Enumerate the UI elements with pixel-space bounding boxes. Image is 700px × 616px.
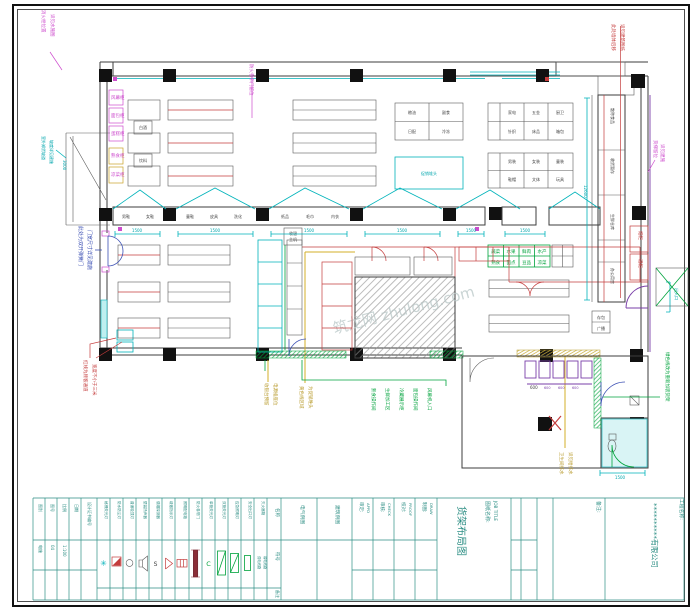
legend-symbol-speaker [139, 556, 148, 571]
grid-cell: 蔬菜 [491, 248, 500, 255]
service-label: 生鲜仓库 [610, 214, 616, 230]
grid-cell: 女装 [532, 158, 540, 164]
case-label: 熟食柜 [111, 152, 125, 159]
sign-label: 审核: [379, 502, 386, 513]
note-hydrant2: 详见水施图 [49, 14, 56, 37]
annex-door-swing [470, 358, 494, 382]
side-dimension: 12600 [583, 185, 588, 198]
legend-name: 照明配电箱 [183, 501, 188, 519]
cabinet-label: 烟柜 [637, 231, 644, 240]
grid-cell: 鞋帽 [508, 176, 516, 182]
legend-name: 格栅荧光灯 [104, 501, 109, 519]
legend-symbol-emergency-lamp [231, 554, 239, 573]
legend-name: 灭火器箱 [261, 501, 266, 516]
note-passage: 红线为顾客通道 [82, 360, 89, 392]
service-label: 办公用房 [610, 268, 616, 284]
grid-cell: 童装 [556, 158, 564, 164]
grid-cell: 水产 [538, 248, 547, 255]
fixture-dim: 600 [572, 386, 578, 390]
annex-fixtures [525, 361, 592, 384]
grid-cell: 厨卫 [556, 109, 564, 115]
counter-cell: 内衣 [331, 213, 339, 219]
rolling-shutter-hatch [598, 76, 634, 95]
sign-label-en: CHECK [387, 503, 392, 517]
right-wall-door-swing [626, 286, 648, 308]
left-double-door [102, 231, 123, 272]
legend-symbol-double-tube [218, 551, 226, 575]
legend-name: 壁装扬声器 [143, 501, 148, 519]
drawing-title: 货架布局图 [455, 506, 468, 556]
grid-cell: 箱包 [556, 128, 564, 134]
drawing-name-label-en: JOB TITLE [493, 500, 498, 521]
note-bottom-green: 面包操作间 [412, 388, 419, 411]
legend-name: 安全出口灯 [248, 501, 253, 519]
grid-cell: 熟食 [491, 259, 500, 266]
legend-symbol-ceiling-lamp [126, 560, 133, 567]
note-annex-yellow: 卫生间排水 [558, 452, 565, 475]
legend-extra: 强电线路 [257, 556, 262, 570]
legend-extra: 弱电线路 [263, 556, 268, 570]
annex-inner-door [601, 382, 625, 406]
cert-label: 设计证书编号 [87, 502, 93, 526]
legend-name: 疏散指示灯 [169, 501, 174, 519]
grid-cell: 玩具 [556, 176, 564, 182]
counter-cell: 女鞋 [146, 213, 154, 219]
cashier-leader-zigzag [113, 188, 600, 209]
sign-label-en: PROOF [408, 503, 413, 516]
sign-label-en: APPD [366, 503, 371, 513]
grid-cell: 五金 [532, 109, 540, 115]
grid-cell: 男装 [508, 158, 516, 164]
grid-cell: 针织 [508, 128, 516, 134]
legend-name: 防火卷帘门 [196, 501, 201, 519]
counter-cell: 童鞋 [186, 213, 194, 219]
grid-cell: 粮油 [408, 109, 416, 115]
info-value: 1:100 [62, 545, 67, 557]
annex-rooms: 600 600 600 600 1500 [256, 350, 648, 480]
grid-cell: 冷冻 [442, 128, 450, 134]
ramp-dimension: 3000 [62, 160, 67, 171]
counter-cell: 洗化 [234, 213, 242, 219]
sign-label: 校对: [400, 502, 407, 513]
legend-symbol-grille-lamp: ✳ [100, 559, 107, 568]
dim-text: 1500 [397, 228, 408, 233]
sign-label-en: DRAW [429, 503, 434, 515]
legend-row-label: 名称 [274, 508, 281, 517]
grid-cell: 副食 [442, 109, 450, 115]
case-label: 蛋糕柜 [111, 130, 125, 137]
case-label: 面包柜 [111, 112, 125, 119]
counter-cell: 皮具 [210, 213, 218, 219]
note-lift2: 详见建施 [659, 144, 666, 162]
legend-name: 普通吸顶灯 [130, 501, 135, 519]
note-door2: 门宽尺寸详见建施 [86, 230, 93, 270]
legend-name: 感烟探测器 [156, 501, 161, 519]
cad-plan-svg: 3000 风幕柜 面包柜 蛋糕柜 熟食柜 凉菜柜 白酒 饮料 粮油 副食 日配 … [0, 0, 700, 616]
legend-row-label: 备注 [275, 590, 281, 598]
legend-symbol-single-tube: C [206, 560, 211, 568]
note-yellow: 电源插座位 [272, 383, 279, 406]
counter-cell: 纸品 [281, 213, 289, 219]
center-storage-block: 筑龙网 zhulong.com [258, 240, 648, 448]
aisle-label: 白酒 [139, 124, 147, 130]
fixture-dim: 600 [530, 385, 538, 390]
drawing-name-label: 图纸名称: [484, 501, 491, 523]
legend-symbol-exit-indicator [166, 558, 173, 569]
note-wall-move: 此处墙体后移 [610, 24, 617, 51]
legend-symbol-smoke-detector: S [154, 561, 158, 568]
info-label: 图别 [38, 504, 44, 512]
fixture-dim: 600 [544, 386, 550, 390]
legend-symbol-exit-lamp [245, 556, 251, 571]
note-shutter: 防火卷帘门留位 [248, 64, 255, 96]
perimeter-shelf-band [113, 62, 556, 76]
grid-cell: 鲜肉 [522, 248, 531, 255]
note-lift: 货梯留位 [652, 140, 659, 158]
project-name-label: 工程名称: [678, 499, 685, 520]
grid-cell: 水果 [507, 248, 516, 255]
dim-text: 1500 [132, 228, 143, 233]
dim-text: 1500 [210, 228, 221, 233]
service-cell: 广播 [597, 325, 605, 331]
legend-name: 双管荧光灯 [222, 501, 227, 519]
info-label: 日期 [74, 504, 80, 512]
cashier-box-label: 收银 [289, 230, 297, 236]
company-name: **********有限公司 [650, 503, 659, 568]
service-cell: 存包 [597, 314, 605, 320]
dim-text: 1500 [520, 228, 531, 233]
cabinet-label: 酒柜 [637, 259, 644, 268]
note-label: 备注: [595, 501, 602, 513]
info-label: 图号 [50, 504, 56, 512]
note-bottom-green: 生鲜加工区 [384, 388, 391, 411]
dim-text: 1500 [304, 228, 315, 233]
aisle-label: 饮料 [139, 157, 147, 163]
note-bottom-green: 熟食操作间 [370, 388, 377, 411]
dim-text: 1500 [466, 228, 477, 233]
grid-cell: 豆品 [522, 260, 531, 266]
info-value: 电施 [38, 545, 44, 553]
case-label: 凉菜柜 [111, 171, 125, 178]
title-block-left-info: 图别 图号 比例 日期 设计证书编号 电施 04 1:100 [38, 502, 93, 557]
note-yellow: 黄色线区域 [298, 386, 305, 409]
legend-symbol-waterproof-lamp [112, 557, 121, 566]
sign-label: 审定: [358, 502, 365, 513]
title-block: 图别 图号 比例 日期 设计证书编号 电施 04 1:100 格栅荧光灯 防水防… [33, 498, 685, 600]
counter-cell: 男鞋 [122, 213, 130, 219]
note-passage2: 宽度不小于三米 [91, 364, 98, 396]
wall-fixture [101, 300, 107, 338]
legend-name: 应急照明灯 [235, 501, 240, 519]
info-label: 比例 [62, 504, 68, 512]
service-label: 散称食品 [610, 108, 616, 124]
note-yellow: 收银台预留 [263, 383, 270, 406]
checkout-dimensions: 1500 1500 1500 1500 1500 1500 [115, 228, 545, 237]
legend-row-label: 符号 [274, 552, 281, 561]
grid-cell: 床品 [532, 128, 540, 134]
example-col: 电气例图 [299, 505, 306, 524]
info-value: 04 [50, 545, 55, 551]
legend-symbol-fire-shutter [191, 550, 200, 577]
annex-dim: 1500 [615, 475, 626, 480]
cashier-box-label: 主机 [289, 236, 297, 242]
note-wall-move2: 详见建筑图纸 [619, 24, 626, 51]
legend-name: 防水防尘灯 [117, 501, 122, 519]
grid-cell: 日配 [408, 129, 416, 134]
note-door: 此处为双开弹簧门 [77, 226, 84, 266]
note-hydrant: 消火栓位置 [40, 10, 47, 33]
legend-name: 单管荧光灯 [209, 501, 214, 519]
note-yellow: 为促销堆头 [307, 386, 314, 409]
right-service-counters: 散称食品 收货暂存 生鲜仓库 办公用房 烟柜 酒柜 出入口 12600 [583, 95, 688, 352]
grid-cell: 文体 [532, 176, 540, 182]
service-label: 收货暂存 [610, 158, 616, 174]
legend-symbol-distribution-box [177, 560, 187, 568]
sign-label: 制图: [421, 502, 428, 513]
note-ramp: 室外卸货坡道 [41, 136, 47, 160]
case-label: 风幕柜 [111, 94, 125, 101]
drawing-sheet: 3000 风幕柜 面包柜 蛋糕柜 熟食柜 凉菜柜 白酒 饮料 粮油 副食 日配 … [0, 0, 700, 616]
note-ramp2: 坡度详见建施 [49, 140, 55, 164]
fixture-dim: 600 [558, 386, 564, 390]
grid-cell: 凉菜 [538, 259, 547, 266]
counter-cell: 毛巾 [306, 213, 314, 219]
signature-cells: 审定: APPD 审核: CHECK 校对: PROOF 制图: DRAW [358, 502, 434, 517]
example-col: 建筑例图 [334, 505, 341, 524]
grid-cell: 家电 [508, 109, 516, 115]
note-annex-yellow: 详见给排水 [567, 452, 574, 475]
note-bottom-green: 风幕机入口 [426, 388, 433, 411]
promo-zone-label: 促销堆头 [421, 170, 437, 176]
entrance-note: 出入口 [674, 288, 680, 300]
note-bottom-green: 冷藏展示柜 [398, 388, 405, 411]
note-green-line: 绿色线改为重新加装货架 [664, 352, 671, 402]
